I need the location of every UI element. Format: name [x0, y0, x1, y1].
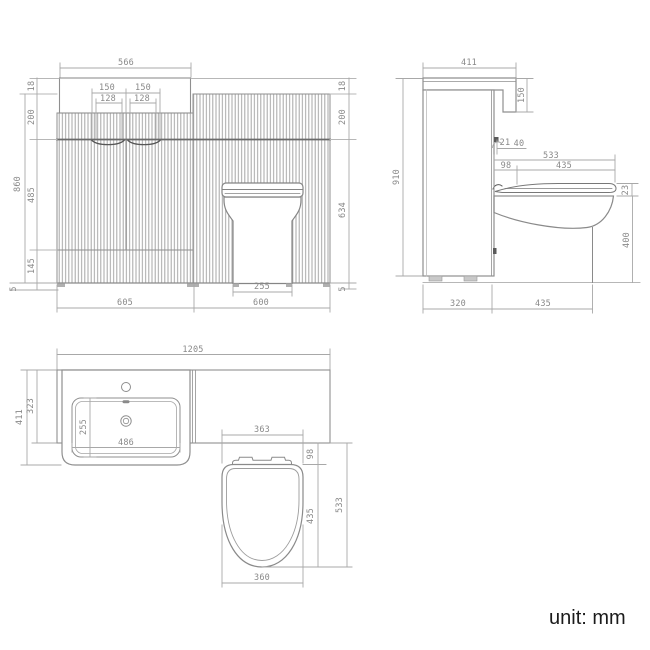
toilet-front-body	[224, 197, 301, 284]
plan-dim-pan-back-width: 363	[254, 426, 270, 435]
technical-drawing-canvas: 566 150 150 128 128 18 18 200 200 860 48…	[0, 0, 650, 650]
plan-seat-outer	[222, 465, 303, 568]
front-dim-door-panel-height: 485	[28, 187, 37, 203]
front-dim-overall-height: 860	[14, 176, 23, 192]
toilet-front-seat	[222, 183, 303, 197]
front-dim-handle-left-inner: 128	[100, 94, 116, 103]
front-dim-foot-left: 5	[10, 286, 19, 291]
plan-dim-pan-width: 360	[254, 574, 270, 583]
side-dim-bowl-height: 400	[623, 232, 632, 248]
front-dim-foot-right: 5	[339, 286, 348, 291]
front-dim-handle-right: 150	[135, 84, 151, 93]
plan-dim-basin-width: 486	[118, 438, 134, 447]
toilet-side-seat	[495, 184, 616, 193]
plan-dim-counter-depth: 323	[27, 398, 36, 414]
side-dim-overall-height: 910	[393, 169, 402, 185]
side-dim-seat-thickness: 23	[622, 185, 631, 196]
front-view-drawing	[10, 63, 356, 312]
waste-drain	[121, 416, 131, 426]
side-dim-seat-gap: 21	[500, 139, 511, 148]
unit-label: unit: mm	[549, 607, 626, 630]
side-cabinet	[423, 90, 494, 276]
front-dim-upper-panel-right: 200	[339, 109, 348, 125]
front-dim-handle-right-inner: 128	[134, 94, 150, 103]
side-dim-pan-projection: 435	[535, 300, 551, 309]
plan-dim-seat-length: 435	[307, 508, 316, 524]
side-dim-cabinet-depth: 320	[450, 300, 466, 309]
side-dim-seat-setback: 98	[501, 161, 512, 170]
plan-dim-pan-projection: 533	[336, 497, 345, 513]
drawing-linework	[0, 0, 650, 650]
toilet-side-bowl	[494, 196, 614, 228]
plan-dim-overall-width: 1205	[182, 345, 203, 354]
front-dim-pan-base-width: 255	[254, 283, 270, 292]
side-dim-pan-depth: 533	[543, 151, 559, 160]
front-dim-wc-width: 600	[253, 299, 269, 308]
front-dim-handle-left: 150	[99, 84, 115, 93]
front-dim-counter-thickness-left: 18	[28, 81, 37, 92]
side-dim-hinge-size: 40	[514, 140, 525, 149]
side-dim-counter-depth: 411	[461, 59, 477, 68]
plan-view-drawing	[21, 349, 352, 587]
overflow-slot	[123, 400, 130, 403]
tap-hole	[122, 383, 131, 392]
front-dim-plinth-height: 145	[28, 258, 37, 274]
front-dim-counter-thickness-right: 18	[339, 81, 348, 92]
front-dim-upper-panel-left: 200	[28, 109, 37, 125]
front-dim-wc-panel-height: 634	[339, 202, 348, 218]
plan-dim-seat-setback: 98	[307, 449, 316, 460]
front-dim-countertop-width: 566	[118, 59, 134, 68]
plan-dim-overall-depth: 411	[16, 409, 25, 425]
seat-hinge-bracket	[494, 137, 499, 142]
side-dim-counter-drop: 150	[518, 87, 527, 103]
front-dim-vanity-width: 605	[117, 299, 133, 308]
side-dim-seat-length: 435	[556, 161, 572, 170]
plan-dim-basin-depth: 255	[80, 419, 89, 435]
